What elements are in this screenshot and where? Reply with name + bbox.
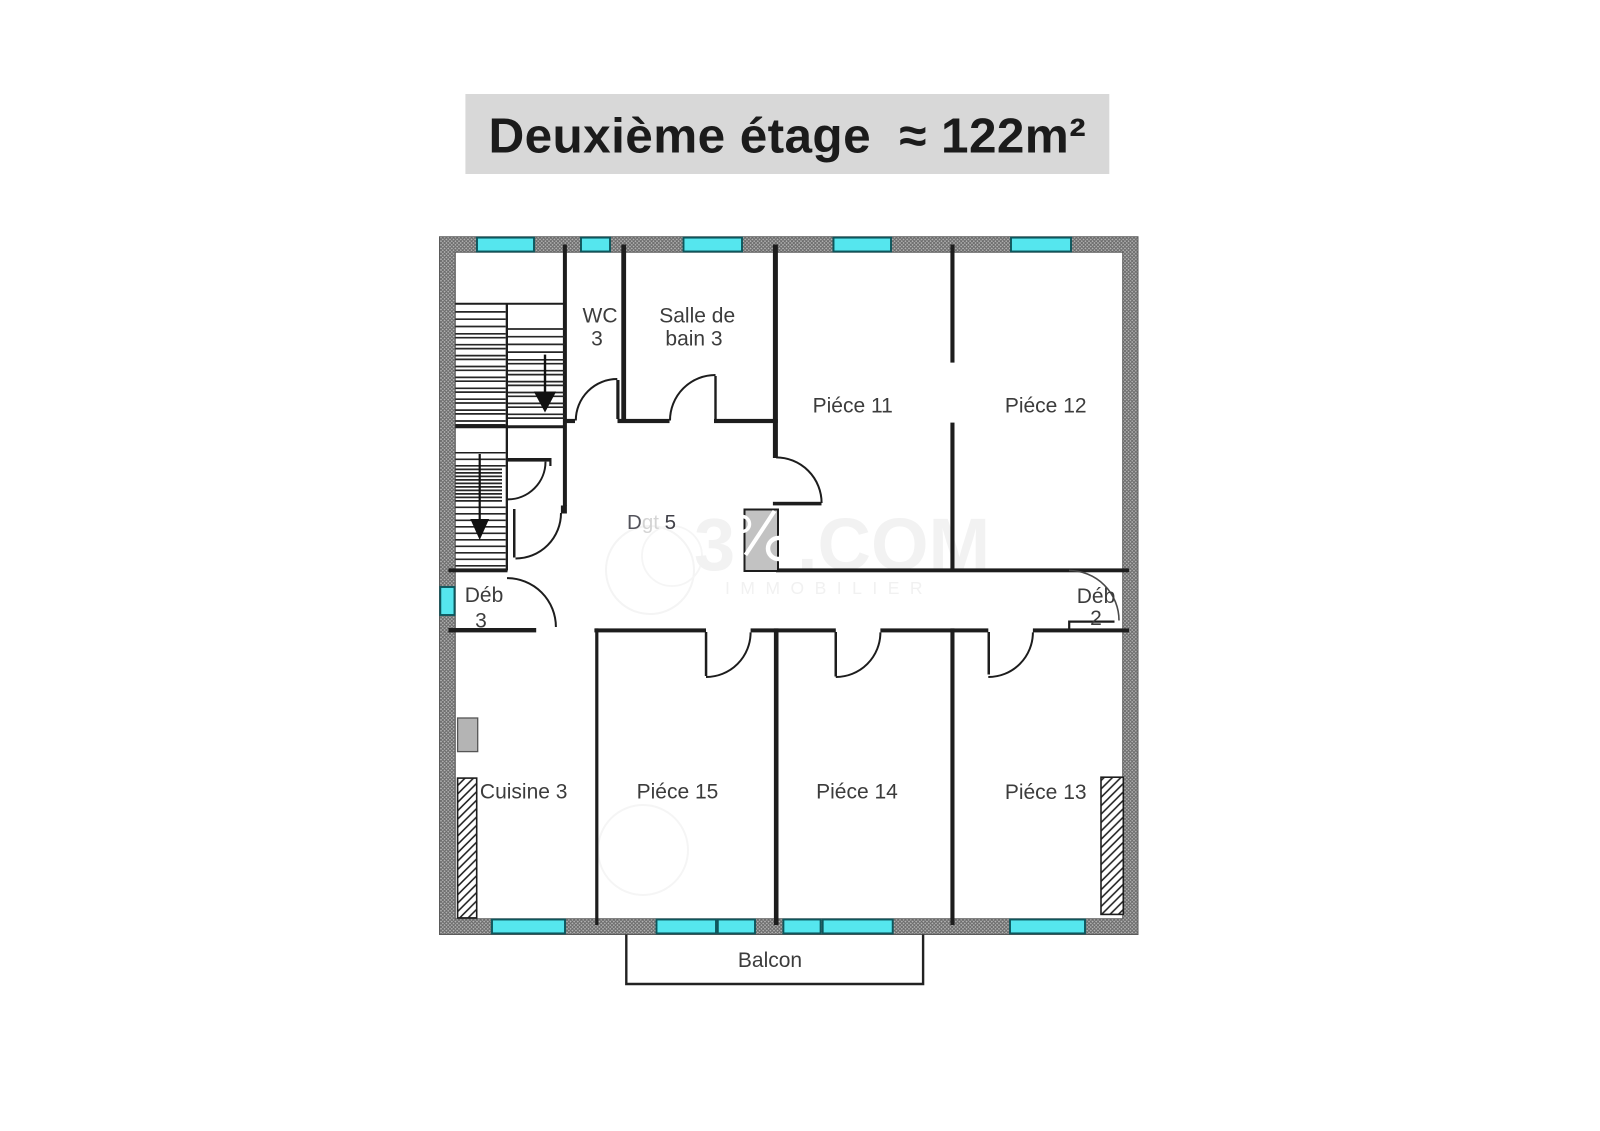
svg-text:Cuisine 3: Cuisine 3 [480, 781, 568, 804]
svg-text:2: 2 [1090, 607, 1102, 630]
svg-text:Deuxième étage ≈ 122m²: Deuxième étage ≈ 122m² [488, 109, 1086, 164]
svg-text:Déb: Déb [465, 584, 504, 607]
svg-text:Déb: Déb [1077, 585, 1116, 608]
svg-text:Balcon: Balcon [738, 949, 802, 972]
svg-text:Salle de: Salle de [659, 305, 735, 328]
svg-text:Piéce 11: Piéce 11 [813, 395, 893, 418]
svg-text:3: 3 [694, 503, 735, 586]
svg-text:.COM: .COM [797, 503, 990, 586]
svg-text:3: 3 [591, 327, 603, 350]
svg-text:WC: WC [583, 305, 618, 328]
svg-text:3: 3 [475, 610, 487, 633]
svg-text:IMMOBILIER: IMMOBILIER [725, 578, 933, 598]
svg-text:Piéce 13: Piéce 13 [1005, 781, 1087, 804]
svg-text:Piéce 15: Piéce 15 [637, 781, 719, 804]
svg-text:Piéce 12: Piéce 12 [1005, 395, 1087, 418]
svg-text:Dgt 5: Dgt 5 [627, 511, 676, 534]
svg-text:Piéce 14: Piéce 14 [816, 781, 898, 804]
svg-text:bain 3: bain 3 [665, 327, 722, 350]
